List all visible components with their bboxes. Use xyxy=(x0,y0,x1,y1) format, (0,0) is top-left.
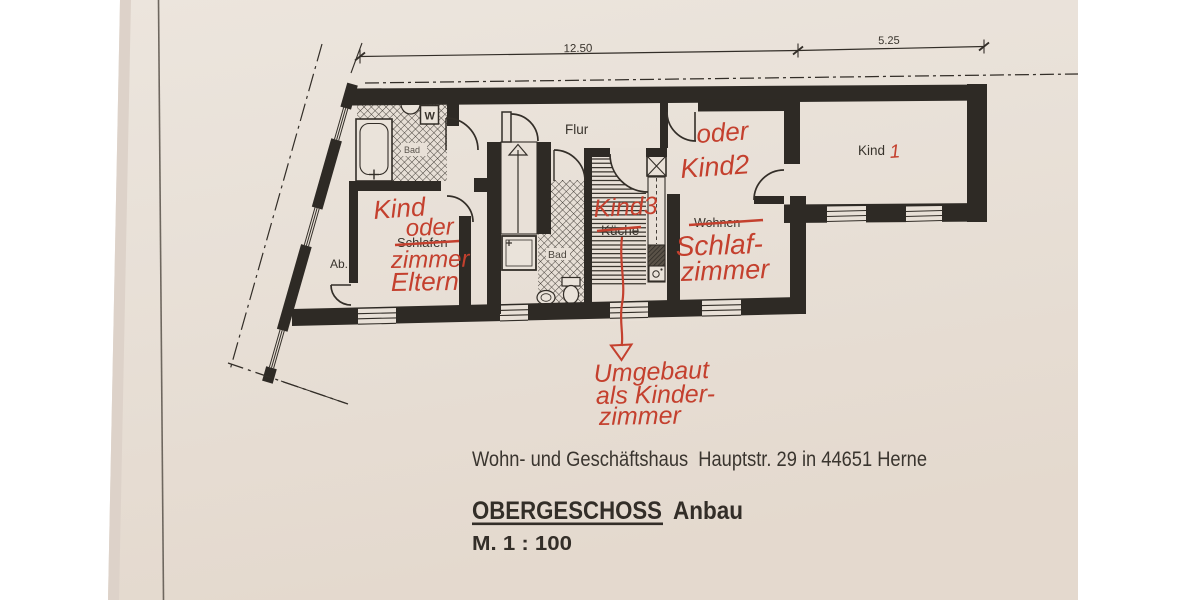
svg-text:oder: oder xyxy=(405,213,455,242)
svg-text:Bad: Bad xyxy=(404,145,420,155)
svg-text:Anbau: Anbau xyxy=(673,497,743,525)
svg-text:Ab.: Ab. xyxy=(330,257,348,271)
svg-text:1: 1 xyxy=(889,141,901,163)
svg-text:M. 1 : 100: M. 1 : 100 xyxy=(472,532,572,555)
svg-text:Eltern: Eltern xyxy=(391,266,459,297)
svg-text:Flur: Flur xyxy=(565,122,589,137)
svg-text:Kind: Kind xyxy=(858,143,885,158)
svg-text:Bad: Bad xyxy=(548,249,567,261)
svg-text:Wohn- und Geschäftshaus Haupt: Wohn- und Geschäftshaus Hauptstr. 29 in … xyxy=(472,447,927,471)
svg-text:W: W xyxy=(425,111,436,123)
svg-text:Kind3: Kind3 xyxy=(593,192,658,223)
svg-text:zimmer: zimmer xyxy=(679,254,770,287)
svg-text:5.25: 5.25 xyxy=(878,35,900,47)
svg-text:12.50: 12.50 xyxy=(563,43,592,56)
svg-text:Kind2: Kind2 xyxy=(679,149,750,184)
svg-text:zimmer: zimmer xyxy=(598,402,683,431)
svg-text:OBERGESCHOSS: OBERGESCHOSS xyxy=(472,497,662,525)
svg-text:oder: oder xyxy=(695,115,750,149)
